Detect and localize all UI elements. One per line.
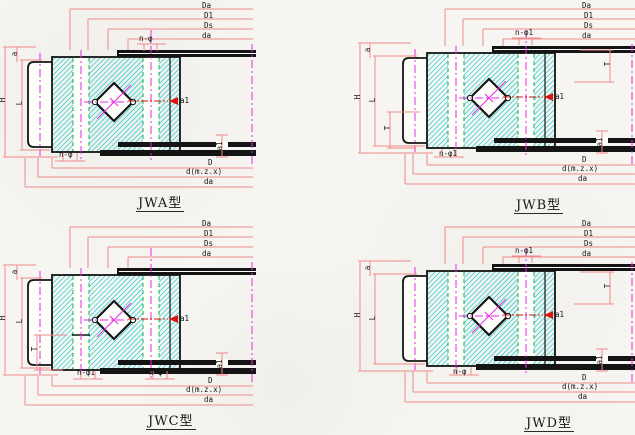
quadrant-jwc: Da D1 Ds da D d(m.z.x) da H L a T a1 a1 …: [0, 218, 317, 435]
t-dim-label: T: [604, 62, 612, 67]
a1-step-dim-label: a1: [596, 137, 604, 146]
a-dim-label: a: [364, 266, 372, 271]
t-dim-label: T: [31, 347, 39, 352]
a-dim-label: a: [11, 270, 19, 275]
top-dim-label: Da: [202, 2, 211, 10]
grease-point-label: a1: [555, 93, 564, 101]
bottom-dim-label: D: [582, 156, 587, 164]
top-dim-label: D1: [584, 12, 593, 20]
inner-height-dim-label: L: [16, 319, 24, 324]
bottom-dim-label: da: [204, 178, 213, 186]
a1-step-dim-label: a1: [216, 141, 224, 150]
top-dim-label: da: [202, 32, 211, 40]
bolt-hole-callout: n-φ1: [439, 150, 457, 158]
t-dim-label: T: [384, 126, 392, 131]
bottom-dim-label: D: [208, 377, 213, 385]
height-dim-label: H: [0, 316, 7, 321]
bottom-dim-label: d(m.z.x): [562, 165, 598, 173]
top-dim-label: Da: [582, 220, 591, 228]
top-dim-label: Ds: [204, 240, 213, 248]
bolt-hole-callout: n-φ1: [515, 247, 533, 255]
bolt-hole-callout: n-φ: [139, 35, 153, 43]
bearing-section-drawing: [0, 0, 317, 217]
inner-height-dim-label: L: [369, 316, 377, 321]
top-dim-label: Ds: [204, 22, 213, 30]
bottom-dim-label: d(m.z.x): [186, 386, 222, 394]
figure-caption: JWA型: [136, 192, 184, 212]
bolt-hole-callout: n-φ: [59, 151, 73, 159]
quadrant-jwd: Da D1 Ds da D d(m.z.x) da H L a T a1 a1 …: [318, 218, 635, 435]
inner-height-dim-label: L: [369, 98, 377, 103]
top-dim-label: da: [582, 32, 591, 40]
a1-step-dim-label: a1: [216, 359, 224, 368]
bottom-dim-label: d(m.z.x): [186, 168, 222, 176]
bottom-dim-label: da: [578, 393, 587, 401]
bolt-hole-callout: n-φ: [149, 369, 163, 377]
bottom-dim-label: da: [578, 175, 587, 183]
t-dim-label: T: [604, 284, 612, 289]
bottom-dim-label: d(m.z.x): [562, 383, 598, 391]
top-dim-label: Ds: [584, 240, 593, 248]
quadrant-jwa: Da D1 Ds da D d(m.z.x) da H L a a1 a1 n-…: [0, 0, 317, 217]
top-dim-label: Ds: [584, 22, 593, 30]
height-dim-label: H: [0, 98, 7, 103]
bottom-dim-label: da: [204, 396, 213, 404]
figure-caption: JWB型: [514, 194, 563, 214]
top-dim-label: Da: [202, 220, 211, 228]
a-dim-label: a: [364, 48, 372, 53]
height-dim-label: H: [354, 95, 362, 100]
a-dim-label: a: [11, 52, 19, 57]
top-dim-label: D1: [204, 12, 213, 20]
figure-caption: JWC型: [146, 410, 196, 430]
quadrant-jwb: Da D1 Ds da D d(m.z.x) da H L a T T a1 a…: [318, 0, 635, 217]
figure-caption: JWD型: [524, 412, 574, 432]
bottom-dim-label: D: [208, 159, 213, 167]
a1-step-dim-label: a1: [596, 355, 604, 364]
grease-point-label: a1: [180, 97, 189, 105]
drawing-sheet: Da D1 Ds da D d(m.z.x) da H L a a1 a1 n-…: [0, 0, 635, 435]
grease-point-label: a1: [180, 315, 189, 323]
top-dim-label: D1: [204, 230, 213, 238]
bottom-dim-label: D: [582, 374, 587, 382]
top-dim-label: da: [582, 250, 591, 258]
bolt-hole-callout: n-φ1: [515, 29, 533, 37]
bolt-hole-callout: n-φ: [453, 368, 467, 376]
bearing-section-drawing: [0, 218, 317, 435]
inner-height-dim-label: L: [16, 101, 24, 106]
bolt-hole-callout: n-φ1: [77, 369, 95, 377]
top-dim-label: Da: [582, 2, 591, 10]
top-dim-label: da: [202, 250, 211, 258]
top-dim-label: D1: [584, 230, 593, 238]
grease-point-label: a1: [555, 311, 564, 319]
height-dim-label: H: [354, 313, 362, 318]
